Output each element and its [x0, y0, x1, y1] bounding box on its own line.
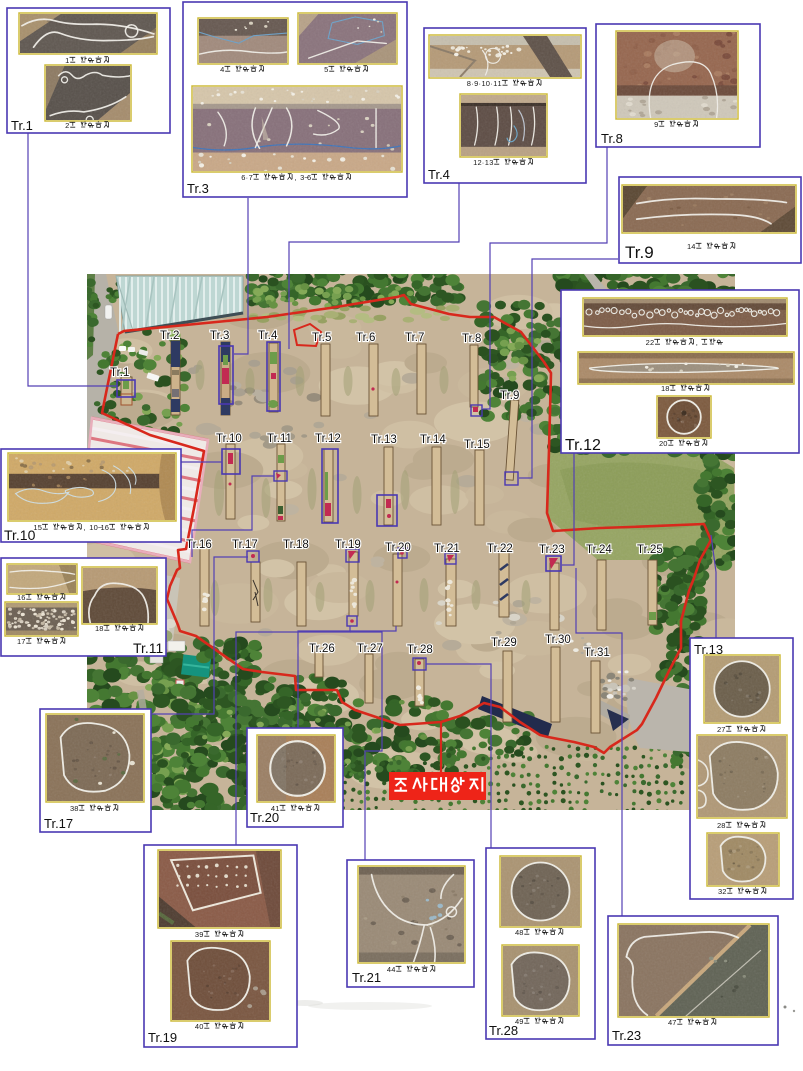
svg-text:Tr.17: Tr.17: [44, 816, 73, 831]
svg-text:Tr.24: Tr.24: [586, 544, 612, 556]
svg-text:6: 6: [105, 523, 109, 532]
svg-text:Tr.1: Tr.1: [110, 367, 129, 379]
svg-text:Tr.19: Tr.19: [335, 539, 361, 551]
svg-text:2: 2: [722, 887, 726, 896]
svg-text:Tr.8: Tr.8: [601, 131, 623, 146]
svg-text:Tr.10: Tr.10: [216, 433, 242, 445]
svg-text:8: 8: [74, 804, 78, 813]
svg-text:0: 0: [199, 1022, 203, 1031]
svg-text:Tr.12: Tr.12: [315, 433, 341, 445]
svg-text:Tr.2: Tr.2: [160, 330, 179, 342]
svg-text:Tr.19: Tr.19: [148, 1030, 177, 1045]
svg-text:Tr.3: Tr.3: [187, 181, 209, 196]
svg-text:Tr.13: Tr.13: [371, 434, 397, 446]
svg-text:6: 6: [307, 173, 311, 182]
svg-text:Tr.29: Tr.29: [491, 637, 517, 649]
svg-text:,: ,: [294, 173, 296, 182]
svg-text:Tr.3: Tr.3: [210, 330, 229, 342]
svg-text:Tr.27: Tr.27: [357, 643, 383, 655]
svg-text:Tr.20: Tr.20: [250, 810, 279, 825]
svg-text:Tr.21: Tr.21: [352, 970, 381, 985]
svg-text:1: 1: [498, 79, 502, 88]
svg-text:Tr.11: Tr.11: [133, 640, 164, 656]
svg-text:Tr.13: Tr.13: [694, 642, 723, 657]
svg-text:Tr.23: Tr.23: [539, 544, 565, 556]
svg-text:,: ,: [696, 338, 698, 347]
svg-text:8: 8: [721, 821, 725, 830]
svg-text:6: 6: [21, 593, 25, 602]
svg-text:Tr.9: Tr.9: [625, 243, 654, 262]
svg-text:Tr.31: Tr.31: [584, 647, 610, 659]
svg-text:8: 8: [665, 384, 669, 393]
svg-text:Tr.23: Tr.23: [612, 1028, 641, 1043]
svg-text:1: 1: [65, 56, 69, 65]
svg-text:4: 4: [391, 965, 395, 974]
svg-text:4: 4: [691, 242, 695, 251]
svg-text:Tr.6: Tr.6: [356, 332, 375, 344]
svg-text:Tr.5: Tr.5: [312, 332, 331, 344]
svg-text:4: 4: [220, 65, 224, 74]
svg-text:Tr.1: Tr.1: [11, 118, 33, 133]
svg-text:Tr.7: Tr.7: [405, 332, 424, 344]
svg-text:Tr.4: Tr.4: [258, 330, 278, 342]
svg-text:Tr.26: Tr.26: [309, 643, 335, 655]
svg-text:Tr.9: Tr.9: [500, 390, 519, 402]
svg-text:Tr.20: Tr.20: [385, 542, 411, 554]
svg-text:,: ,: [84, 523, 86, 532]
svg-text:7: 7: [249, 173, 253, 182]
svg-text:8: 8: [99, 624, 103, 633]
svg-text:Tr.28: Tr.28: [489, 1023, 518, 1038]
svg-text:Tr.25: Tr.25: [637, 544, 663, 556]
svg-text:5: 5: [324, 65, 328, 74]
svg-text:Tr.21: Tr.21: [434, 543, 460, 555]
svg-text:Tr.11: Tr.11: [267, 433, 292, 445]
svg-text:Tr.10: Tr.10: [4, 527, 36, 543]
svg-text:2: 2: [65, 121, 69, 130]
svg-text:0: 0: [663, 439, 667, 448]
svg-text:Tr.30: Tr.30: [545, 634, 571, 646]
svg-text:5: 5: [38, 523, 42, 532]
svg-text:Tr.16: Tr.16: [186, 539, 212, 551]
svg-text:9: 9: [519, 1017, 523, 1026]
svg-text:Tr.28: Tr.28: [407, 644, 433, 656]
svg-text:Tr.18: Tr.18: [283, 539, 309, 551]
svg-text:7: 7: [21, 637, 25, 646]
svg-text:3: 3: [489, 158, 493, 167]
svg-text:7: 7: [672, 1018, 676, 1027]
svg-text:Tr.4: Tr.4: [428, 167, 450, 182]
svg-text:2: 2: [650, 338, 654, 347]
svg-text:9: 9: [199, 930, 203, 939]
svg-text:Tr.17: Tr.17: [232, 539, 258, 551]
svg-text:Tr.15: Tr.15: [464, 439, 490, 451]
svg-text:Tr.8: Tr.8: [462, 333, 481, 345]
svg-text:9: 9: [654, 120, 658, 129]
svg-text:Tr.22: Tr.22: [487, 543, 513, 555]
svg-text:Tr.12: Tr.12: [565, 437, 601, 454]
svg-text:7: 7: [721, 725, 725, 734]
svg-text:Tr.14: Tr.14: [420, 434, 446, 446]
svg-text:8: 8: [519, 928, 523, 937]
